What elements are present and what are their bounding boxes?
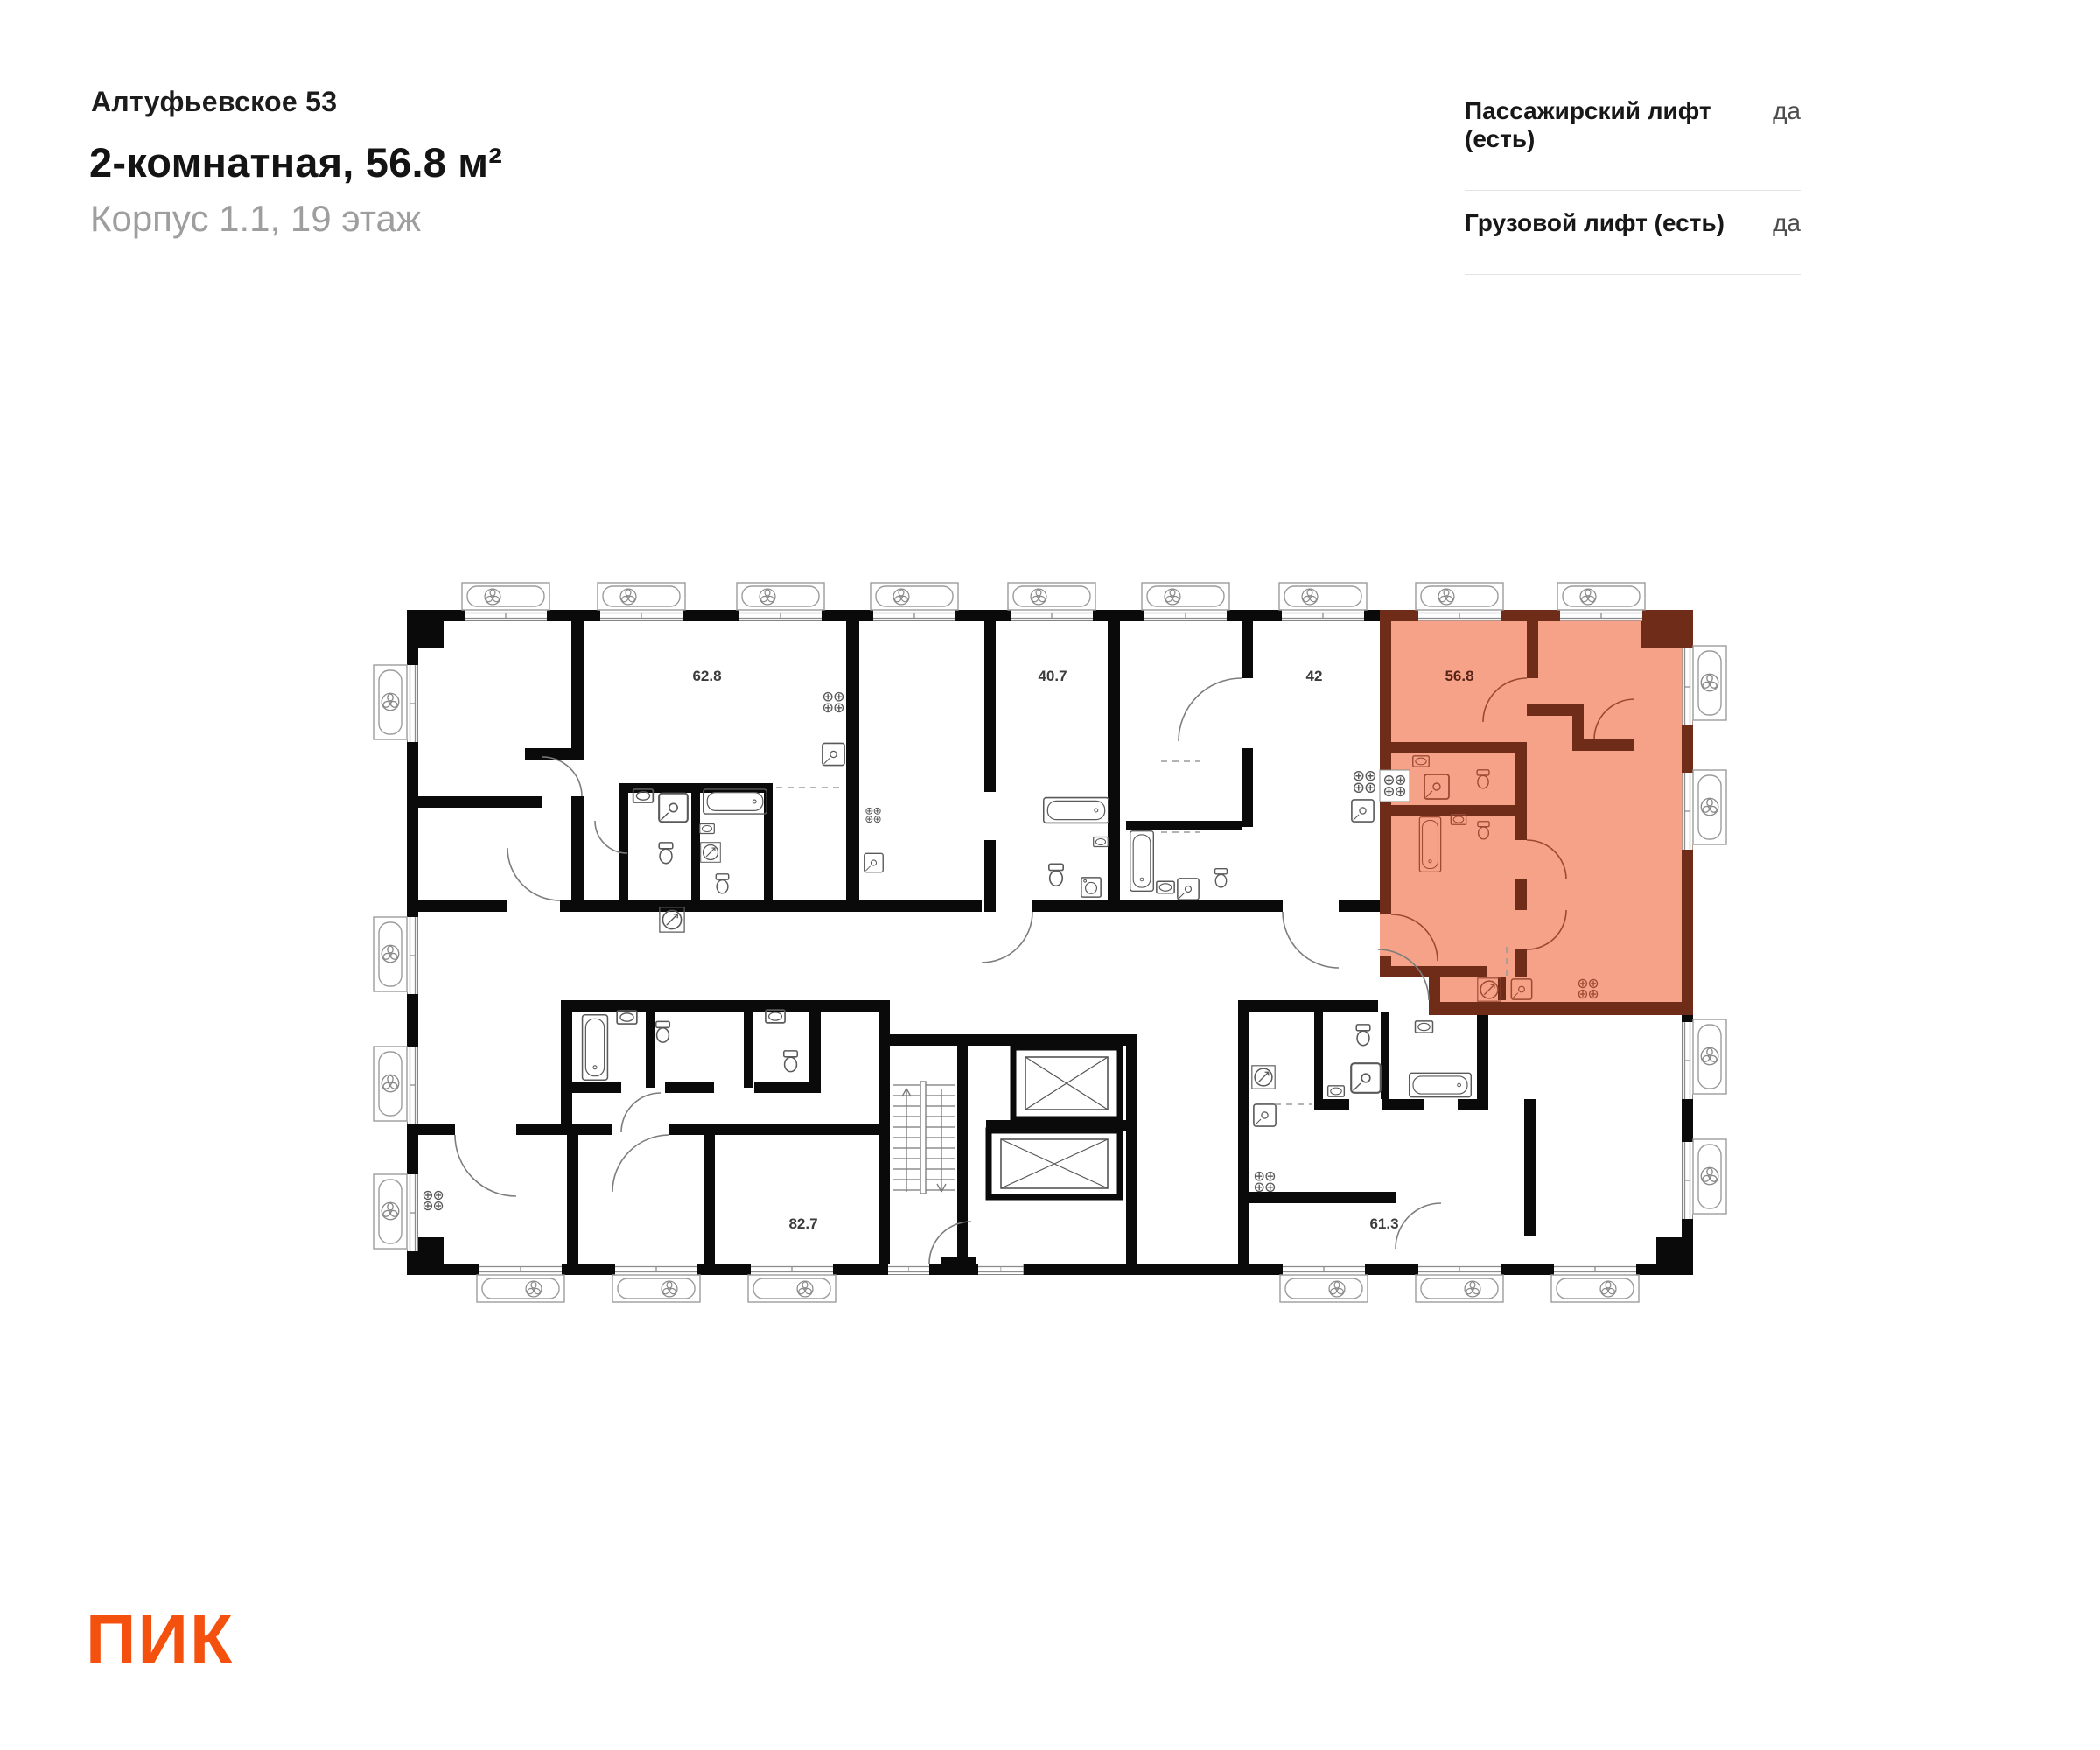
- unit-label-42[interactable]: 42: [1306, 668, 1323, 684]
- unit-label-40-7[interactable]: 40.7: [1038, 668, 1067, 684]
- unit-label-82-7[interactable]: 82.7: [788, 1215, 817, 1232]
- unit-label-62-8[interactable]: 62.8: [692, 668, 721, 684]
- page: { "header": { "project_name": "Алтуфьевс…: [0, 0, 2100, 1750]
- floor-plan: 62.8 40.7 42 56.8 82.7 61.3: [0, 0, 2100, 1750]
- unit-label-56-8-highlighted[interactable]: 56.8: [1445, 668, 1473, 684]
- stairs: [892, 1081, 955, 1193]
- unit-label-61-3[interactable]: 61.3: [1369, 1215, 1398, 1232]
- pik-logo[interactable]: ПИК: [86, 1599, 234, 1680]
